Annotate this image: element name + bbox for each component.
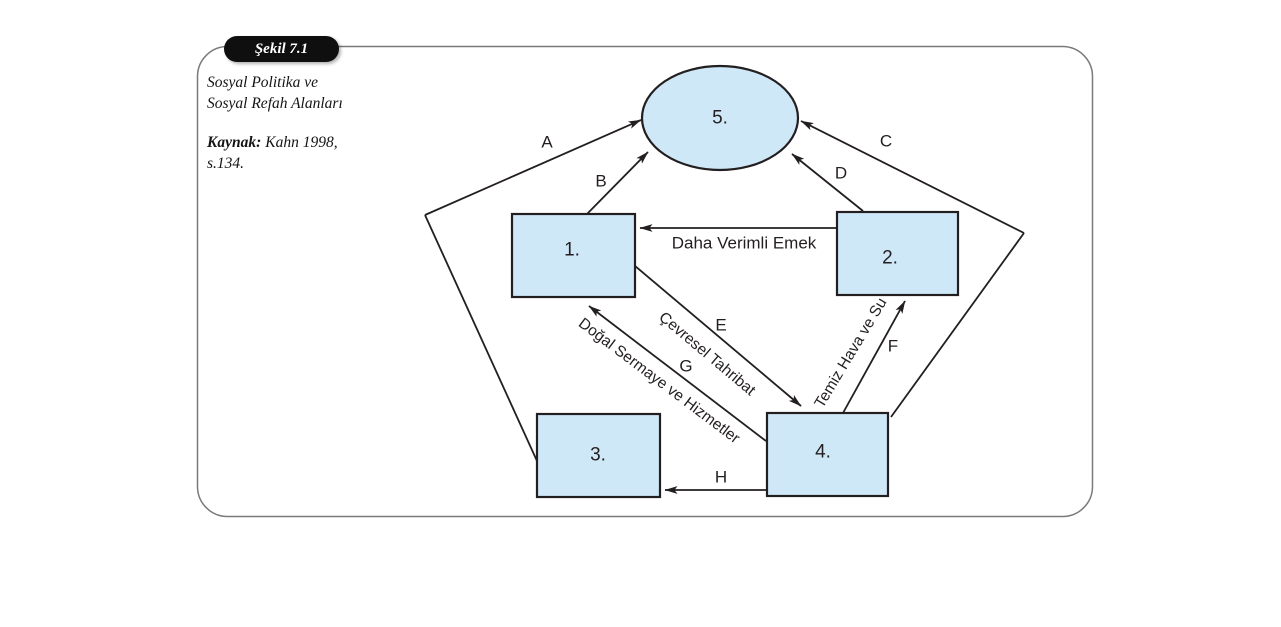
source-line-2: s.134. xyxy=(207,153,382,174)
arrow-h-label: H xyxy=(715,468,727,487)
caption-line-1: Sosyal Politika ve xyxy=(207,72,382,93)
arrow-a-label: A xyxy=(541,133,553,152)
flow-label-temiz-hava-ve-su: Temiz Hava ve Su xyxy=(812,295,891,411)
flow-label-daha-verimli-emek: Daha Verimli Emek xyxy=(672,234,817,253)
figure-caption: Sosyal Politika ve Sosyal Refah Alanları… xyxy=(207,72,382,174)
node-label-4: 4. xyxy=(815,442,831,463)
figure-source: Kaynak:Kahn 1998, s.134. xyxy=(207,132,382,174)
arrow-f-label: F xyxy=(888,337,898,356)
node-label-5: 5. xyxy=(712,108,728,129)
arrow-a xyxy=(425,120,641,215)
arrow-b-label: B xyxy=(595,172,606,191)
diagram-svg: 5. 1. 2. 3. 4. A B C D E F G H Daha Veri… xyxy=(0,0,1281,627)
node-label-1: 1. xyxy=(564,240,580,261)
arrow-c-label: C xyxy=(880,132,892,151)
arrow-d xyxy=(792,154,863,211)
figure-badge-label: Şekil 7.1 xyxy=(255,41,308,58)
node-label-3: 3. xyxy=(590,445,606,466)
source-text: Kahn 1998, xyxy=(265,134,337,151)
node-label-2: 2. xyxy=(882,248,898,269)
figure-canvas: Şekil 7.1 Sosyal Politika ve Sosyal Refa… xyxy=(0,0,1281,627)
figure-badge: Şekil 7.1 xyxy=(224,36,339,62)
arrow-d-label: D xyxy=(835,164,847,183)
caption-line-2: Sosyal Refah Alanları xyxy=(207,93,382,114)
source-label: Kaynak: xyxy=(207,134,261,151)
arrow-e-label: E xyxy=(715,316,726,335)
arrow-g-label: G xyxy=(679,357,692,376)
